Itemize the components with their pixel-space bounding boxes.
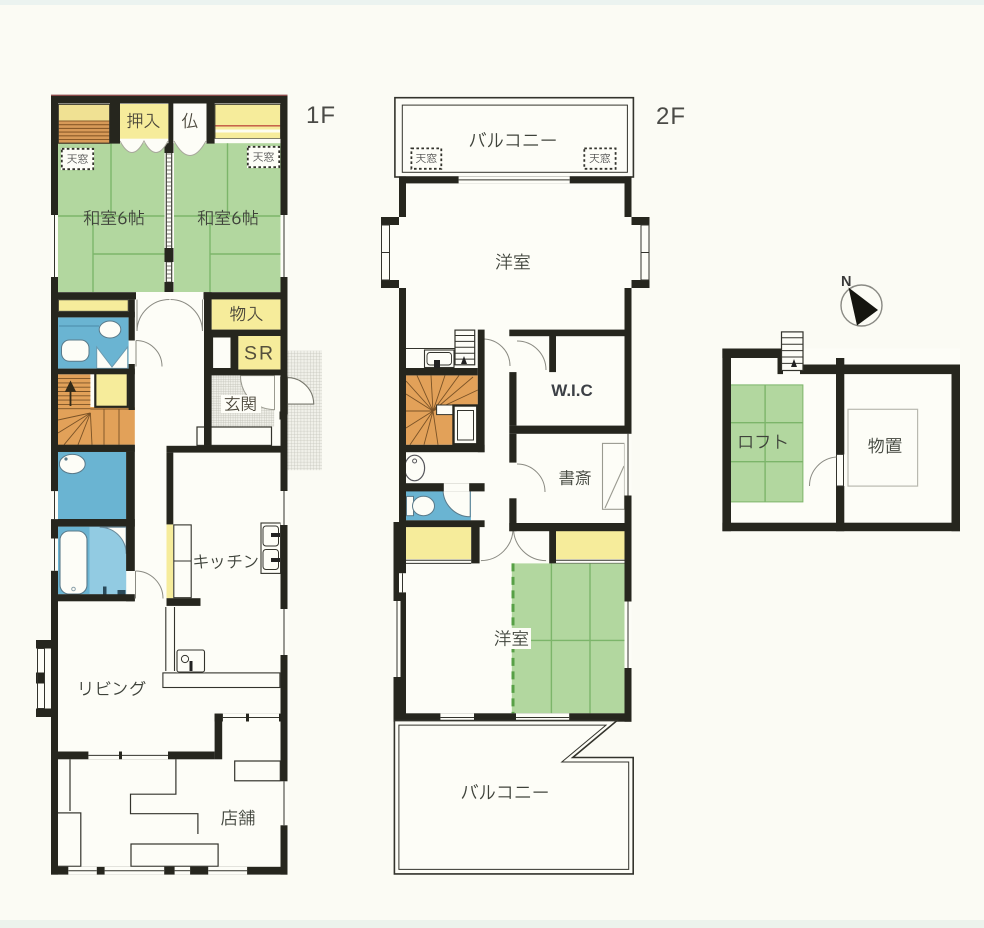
svg-text:SR: SR <box>244 343 275 365</box>
svg-text:1F: 1F <box>306 102 336 129</box>
svg-text:N: N <box>841 274 851 290</box>
svg-text:2F: 2F <box>656 103 686 130</box>
svg-text:W.I.C: W.I.C <box>551 381 593 400</box>
